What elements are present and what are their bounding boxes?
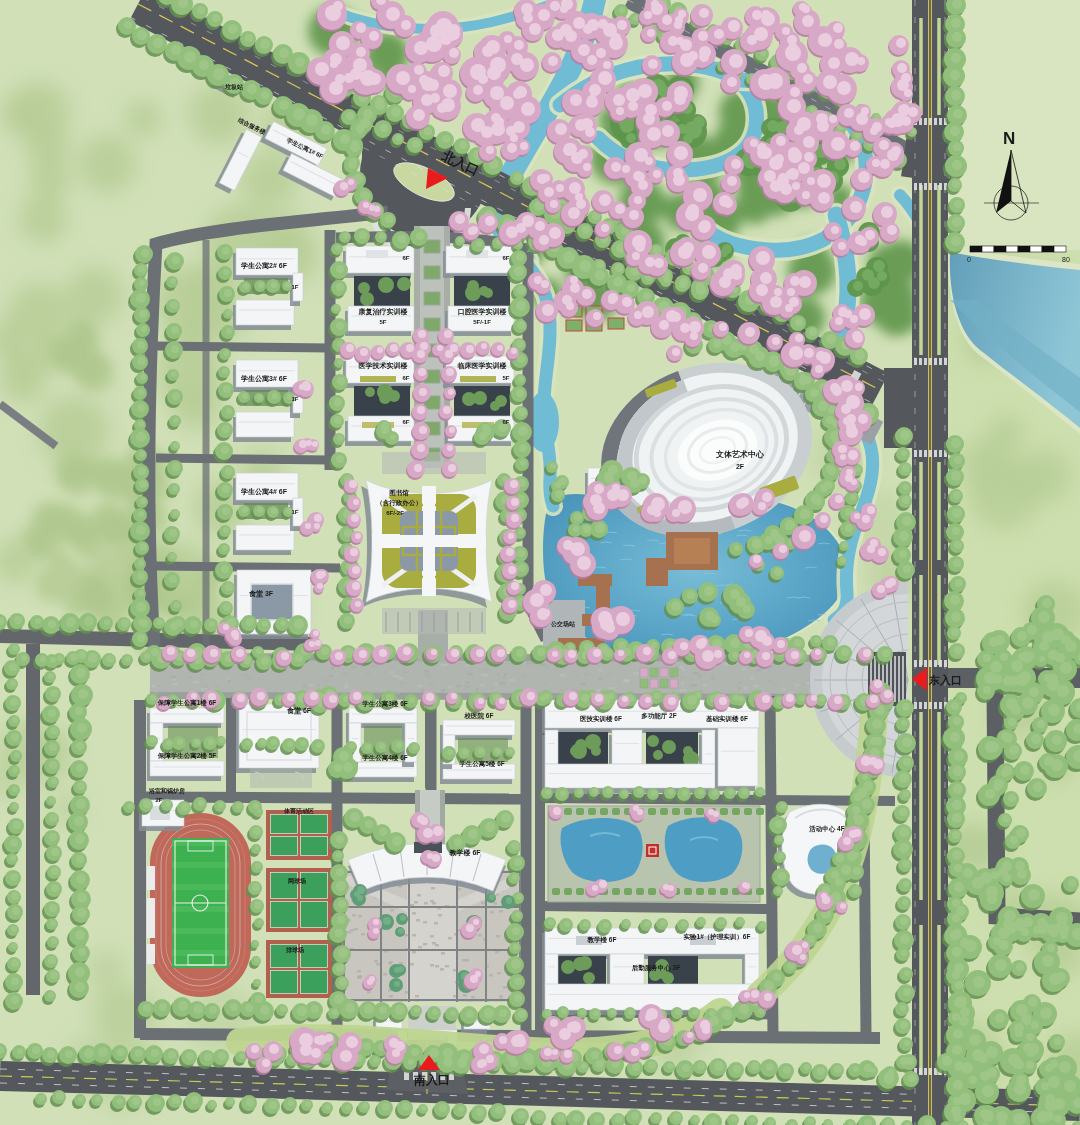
svg-text:学生公寓3楼 6F: 学生公寓3楼 6F [362, 700, 408, 708]
svg-text:垃圾站: 垃圾站 [224, 83, 244, 91]
svg-text:0: 0 [967, 256, 971, 263]
svg-text:5F: 5F [379, 319, 386, 325]
svg-text:后勤服务中心 3F: 后勤服务中心 3F [631, 964, 680, 972]
svg-text:医技实训楼 6F: 医技实训楼 6F [580, 715, 622, 723]
svg-text:网球场: 网球场 [288, 877, 306, 885]
svg-text:临床医学实训楼: 临床医学实训楼 [458, 361, 508, 370]
svg-text:1F: 1F [291, 284, 298, 290]
svg-text:体育活动区: 体育活动区 [283, 807, 314, 815]
svg-text:6F: 6F [402, 419, 409, 425]
svg-text:南入口: 南入口 [413, 1073, 450, 1087]
svg-text:口腔医学实训楼: 口腔医学实训楼 [458, 307, 508, 316]
svg-text:食堂 3F: 食堂 3F [248, 590, 274, 598]
svg-text:1F: 1F [291, 509, 298, 515]
svg-text:6F: 6F [402, 375, 409, 381]
svg-text:保障学生公寓1楼 6F: 保障学生公寓1楼 6F [157, 699, 217, 707]
svg-text:学生公寓4# 6F: 学生公寓4# 6F [241, 487, 288, 496]
svg-text:6F: 6F [402, 255, 409, 261]
svg-text:学生公寓4楼 6F: 学生公寓4楼 6F [362, 754, 408, 762]
svg-text:（含行政办公）: （含行政办公） [376, 499, 422, 507]
svg-text:康复治疗实训楼: 康复治疗实训楼 [358, 307, 409, 316]
svg-text:校医院 6F: 校医院 6F [464, 712, 494, 720]
svg-text:5F: 5F [502, 375, 509, 381]
svg-text:活动中心 4F: 活动中心 4F [808, 825, 844, 833]
svg-text:基础实训楼 6F: 基础实训楼 6F [706, 715, 748, 723]
svg-text:教学楼 6F: 教学楼 6F [587, 936, 617, 944]
svg-text:学生公寓3# 6F: 学生公寓3# 6F [241, 374, 288, 383]
svg-text:学生公寓2# 6F: 学生公寓2# 6F [241, 261, 288, 270]
svg-text:实验1#（护理实训）6F: 实验1#（护理实训）6F [684, 933, 751, 941]
svg-text:保障学生公寓2楼 5F: 保障学生公寓2楼 5F [157, 752, 217, 760]
svg-text:教学楼 6F: 教学楼 6F [448, 849, 481, 857]
svg-text:图书馆: 图书馆 [389, 489, 409, 497]
svg-text:文体艺术中心: 文体艺术中心 [715, 450, 765, 459]
svg-text:多功能厅 2F: 多功能厅 2F [641, 712, 676, 720]
svg-text:6F/-2F: 6F/-2F [386, 510, 404, 516]
svg-text:医学技术实训楼: 医学技术实训楼 [359, 361, 409, 370]
svg-text:1F: 1F [291, 396, 298, 402]
svg-text:6F: 6F [502, 255, 509, 261]
svg-text:公交场站: 公交场站 [550, 620, 576, 628]
svg-text:排球场: 排球场 [285, 946, 304, 954]
svg-text:80: 80 [1062, 256, 1070, 263]
svg-text:食堂 6F: 食堂 6F [286, 707, 312, 715]
svg-text:N: N [1003, 129, 1015, 148]
svg-text:东入口: 东入口 [928, 674, 962, 687]
svg-text:5F/-1F: 5F/-1F [473, 319, 491, 325]
svg-text:6F: 6F [502, 419, 509, 425]
svg-text:浴室和锅炉房: 浴室和锅炉房 [148, 787, 185, 795]
svg-text:学生公寓5楼 6F: 学生公寓5楼 6F [459, 760, 505, 768]
svg-text:2F: 2F [155, 797, 162, 803]
svg-text:2F: 2F [736, 463, 745, 470]
